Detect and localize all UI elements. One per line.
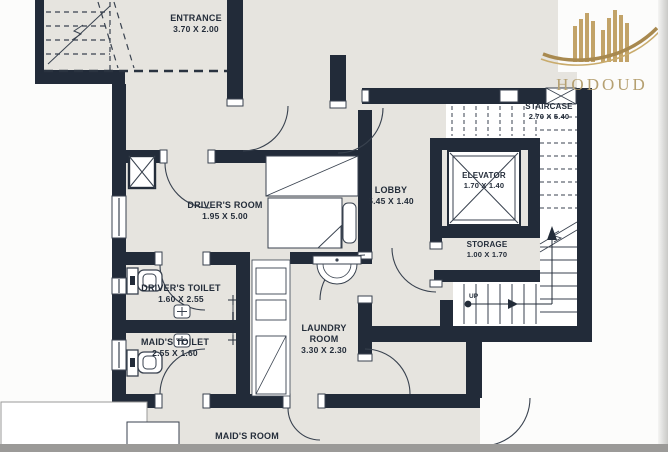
room-dims: 3.30 X 2.30 [289, 345, 359, 356]
room-name: MAID'S ROOM [182, 431, 312, 442]
stair-direction-arrow [465, 226, 557, 309]
room-dims: 1.70 X 1.40 [444, 181, 524, 191]
room-name: LAUNDRY ROOM [289, 323, 359, 345]
room-label-maids-room: MAID'S ROOM [182, 431, 312, 442]
door-jamb [155, 90, 442, 408]
room-label-staircase: STAIRCASE 2.70 X 5.40 [504, 102, 594, 122]
room-label-drivers-room: DRIVER'S ROOM 1.95 X 5.00 [160, 200, 290, 222]
room-name: ENTRANCE [131, 13, 261, 24]
room-label-entrance: ENTRANCE 3.70 X 2.00 [131, 13, 261, 35]
room-label-lobby: LOBBY 5.45 X 1.40 [341, 185, 441, 207]
room-dims: 2.55 X 1.60 [110, 348, 240, 359]
room-name: LOBBY [341, 185, 441, 196]
planter-outline [1, 402, 147, 450]
room-dims: 2.70 X 5.40 [504, 112, 594, 122]
stair-up-label: UP [469, 293, 478, 300]
room-dims: 1.95 X 5.00 [160, 211, 290, 222]
room-dims: 3.70 X 2.00 [131, 24, 261, 35]
gold-towers-swoosh-icon [539, 4, 665, 74]
room-name: STORAGE [437, 240, 537, 250]
staircase-top-left-icon [46, 2, 134, 70]
room-label-laundry: LAUNDRY ROOM 3.30 X 2.30 [289, 323, 359, 356]
sink-icon [313, 256, 361, 284]
brand-logo: HODOUD [538, 4, 666, 104]
page-edge-right [658, 0, 668, 452]
room-dims: 1.60 X 2.55 [116, 294, 246, 305]
room-name: DRIVER'S ROOM [160, 200, 290, 211]
room-label-maids-toilet: MAID'S TOILET 2.55 X 1.60 [110, 337, 240, 359]
room-name: MAID'S TOILET [110, 337, 240, 348]
room-dims: 5.45 X 1.40 [341, 196, 441, 207]
room-label-storage: STORAGE 1.00 X 1.70 [437, 240, 537, 260]
room-name: DRIVER'S TOILET [116, 283, 246, 294]
brand-name: HODOUD [538, 75, 666, 95]
room-label-elevator: ELEVATOR 1.70 X 1.40 [444, 171, 524, 191]
service-shaft-icon [252, 260, 290, 396]
room-name: ELEVATOR [444, 171, 524, 181]
page-edge-bottom [0, 444, 668, 452]
room-label-drivers-toilet: DRIVER'S TOILET 1.60 X 2.55 [116, 283, 246, 305]
floor-plan-canvas: ENTRANCE 3.70 X 2.00 DRIVER'S ROOM 1.95 … [0, 0, 668, 452]
room-dims: 1.00 X 1.70 [437, 250, 537, 260]
duct-shaft-icon [129, 156, 155, 188]
